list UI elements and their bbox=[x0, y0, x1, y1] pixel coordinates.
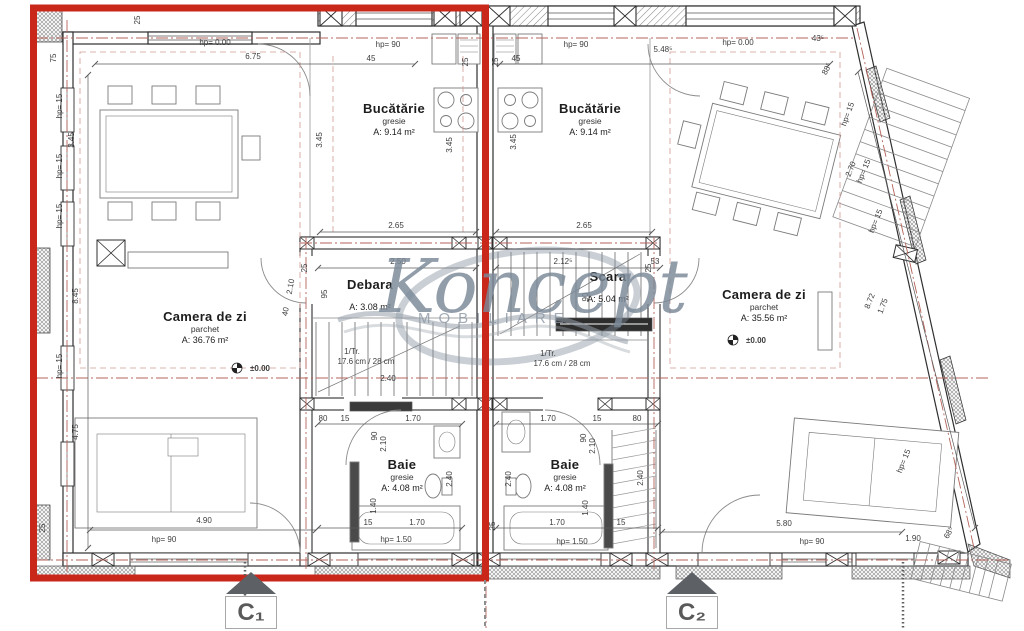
dimension-label: hp= 90 bbox=[564, 40, 589, 49]
dimension-label: hp= 15 bbox=[55, 93, 64, 118]
room-name: Baie bbox=[381, 458, 423, 473]
dimension-label: hp= 0.00 bbox=[199, 38, 231, 47]
dimension-label: 25 bbox=[644, 263, 653, 272]
room-name: Scara bbox=[587, 270, 629, 285]
dimension-label: 95 bbox=[320, 289, 329, 298]
room-area: A: 36.76 m² bbox=[163, 335, 247, 345]
room-label-bath-left: Baie gresie A: 4.08 m² bbox=[381, 458, 423, 493]
section-label-c2: C₂ bbox=[666, 596, 718, 629]
dimension-label: 5.80 bbox=[776, 519, 792, 528]
section-marker-c2: C₂ bbox=[666, 572, 718, 629]
dimension-label: 1.40 bbox=[369, 498, 378, 514]
dimension-label: 8.72 bbox=[863, 292, 877, 310]
room-label-scara: Scara A: 5.04 m² bbox=[587, 270, 629, 304]
dimension-label: 3.45 bbox=[67, 132, 76, 148]
dimension-label: 68⁵ bbox=[942, 525, 956, 540]
room-area: A: 5.04 m² bbox=[587, 294, 629, 304]
dimension-label: 1.70 bbox=[540, 414, 556, 423]
room-name: Bucătărie bbox=[559, 102, 621, 117]
room-name: Bucătărie bbox=[363, 102, 425, 117]
room-label-kitchen-left: Bucătărie gresie A: 9.14 m² bbox=[363, 102, 425, 137]
dimension-label: 8.45 bbox=[71, 288, 80, 304]
dimension-label: 3.45 bbox=[445, 137, 454, 153]
dimension-label: 45 bbox=[512, 54, 521, 63]
room-area: A: 4.08 m² bbox=[381, 483, 423, 493]
room-material: gresie bbox=[363, 117, 425, 127]
room-label-living-right: Camera de zi parchet A: 35.56 m² bbox=[722, 288, 806, 323]
dimension-label: 25 bbox=[38, 523, 47, 532]
dimension-label: hp= 15 bbox=[55, 353, 64, 378]
room-material: gresie bbox=[381, 473, 423, 483]
dimension-label: 2.12⁵ bbox=[554, 257, 573, 266]
dimension-label: 5.48⁵ bbox=[654, 45, 673, 54]
svg-text:±0.00: ±0.00 bbox=[746, 336, 767, 345]
dimension-label: 80 bbox=[319, 414, 328, 423]
dimension-label: 45 bbox=[367, 54, 376, 63]
dimension-label: 90 bbox=[370, 431, 379, 440]
dimension-label: hp= 90 bbox=[376, 40, 401, 49]
dimension-label: 90 bbox=[579, 433, 588, 442]
dimension-label: hp= 15 bbox=[55, 203, 64, 228]
dimension-label: 2.40 bbox=[504, 471, 513, 487]
dimension-label: 4.75 bbox=[71, 424, 80, 440]
dimension-label: 1/Tr. bbox=[540, 349, 556, 358]
section-marker-c1: C₁ bbox=[225, 572, 277, 629]
dimension-label: 1.70 bbox=[405, 414, 421, 423]
dimension-label: 88⁵ bbox=[820, 61, 834, 76]
floor-plan-drawing: ±0.00±0.00 hp= 0.006.757525hp= 904525254… bbox=[0, 0, 1024, 631]
dimension-label: hp= 0.00 bbox=[722, 38, 754, 47]
dimension-label: hp= 1.50 bbox=[556, 537, 588, 546]
dimension-label: 2.40 bbox=[445, 471, 454, 487]
dimension-label: 1.70 bbox=[409, 518, 425, 527]
dimension-label: 25 bbox=[300, 263, 309, 272]
dimension-line bbox=[497, 61, 833, 67]
dimension-label: 6.75 bbox=[245, 52, 261, 61]
dimension-label: 15 bbox=[617, 518, 626, 527]
dimension-label: hp= 90 bbox=[800, 537, 825, 546]
room-area: A: 35.56 m² bbox=[722, 313, 806, 323]
room-label-debara: Debara A: 3.08 m² bbox=[347, 278, 393, 312]
dimension-label: 75 bbox=[49, 53, 58, 62]
dimension-label: 25 bbox=[461, 57, 470, 66]
dimension-label: 3.45 bbox=[315, 132, 324, 148]
room-area: A: 9.14 m² bbox=[363, 127, 425, 137]
dimension-label: 80 bbox=[633, 414, 642, 423]
room-name: Camera de zi bbox=[722, 288, 806, 303]
dimension-label: 2.40 bbox=[380, 374, 396, 383]
room-name: Camera de zi bbox=[163, 310, 247, 325]
dimension-label: 25 bbox=[488, 521, 497, 530]
dimension-label: 1.90 bbox=[905, 534, 921, 543]
room-label-bath-right: Baie gresie A: 4.08 m² bbox=[544, 458, 586, 493]
section-arrow-icon bbox=[667, 572, 717, 594]
dimension-label: hp= 15 bbox=[867, 207, 885, 234]
room-area: A: 9.14 m² bbox=[559, 127, 621, 137]
dimension-label: 3.45 bbox=[509, 134, 518, 150]
dimension-label: 40 bbox=[280, 306, 291, 317]
dimension-label: 17.6 cm / 28 cm bbox=[338, 357, 395, 366]
dimension-label: 25 bbox=[133, 15, 142, 24]
furniture bbox=[75, 34, 959, 550]
dimension-label: 43⁵ bbox=[812, 34, 824, 43]
room-material: gresie bbox=[544, 473, 586, 483]
dimension-label: hp= 15 bbox=[55, 153, 64, 178]
room-area: A: 3.08 m² bbox=[347, 302, 393, 312]
level-marker: ±0.00 bbox=[728, 335, 767, 345]
room-name: Baie bbox=[544, 458, 586, 473]
dimension-label: 2.10 bbox=[588, 438, 597, 454]
room-name: Debara bbox=[347, 278, 393, 293]
dimension-label: 2.65 bbox=[388, 221, 404, 230]
floor-plan: ±0.00±0.00 hp= 0.006.757525hp= 904525254… bbox=[0, 0, 1024, 631]
dimension-label: 15 bbox=[593, 414, 602, 423]
room-label-living-left: Camera de zi parchet A: 36.76 m² bbox=[163, 310, 247, 345]
level-marker: ±0.00 bbox=[232, 363, 271, 373]
dimension-label: 15 bbox=[364, 518, 373, 527]
dimension-label: 2.10 bbox=[379, 436, 388, 452]
dimension-label: hp= 90 bbox=[152, 535, 177, 544]
dimension-label: 2.65 bbox=[576, 221, 592, 230]
dimension-label: 4.90 bbox=[196, 516, 212, 525]
dimension-line bbox=[493, 229, 655, 235]
dimension-line bbox=[659, 529, 905, 535]
room-area: A: 4.08 m² bbox=[544, 483, 586, 493]
dimension-label: 17.6 cm / 28 cm bbox=[534, 359, 591, 368]
dimension-label: 2.40 bbox=[636, 470, 645, 486]
dimension-label: 15 bbox=[341, 414, 350, 423]
dimension-label: 2.10 bbox=[285, 278, 297, 295]
dimension-label: hp= 15 bbox=[839, 100, 856, 127]
dimension-label: 1.75 bbox=[876, 297, 890, 315]
section-label-c1: C₁ bbox=[225, 596, 277, 629]
svg-text:±0.00: ±0.00 bbox=[250, 364, 271, 373]
dimension-label: 2.70 bbox=[844, 160, 858, 178]
room-material: gresie bbox=[559, 117, 621, 127]
dimension-line bbox=[493, 265, 663, 271]
dimension-label: hp= 1.50 bbox=[380, 535, 412, 544]
dimension-label: 2.50 bbox=[390, 257, 406, 266]
dimension-label: 25 bbox=[491, 57, 500, 66]
room-material: parchet bbox=[722, 303, 806, 313]
dimension-label: 1/Tr. bbox=[344, 347, 360, 356]
dimension-label: 1.70 bbox=[549, 518, 565, 527]
section-arrow-icon bbox=[226, 572, 276, 594]
room-material: parchet bbox=[163, 325, 247, 335]
dimension-label: 1.40 bbox=[581, 500, 590, 516]
dimension-label: hp= 15 bbox=[855, 157, 873, 184]
room-label-kitchen-right: Bucătărie gresie A: 9.14 m² bbox=[559, 102, 621, 137]
